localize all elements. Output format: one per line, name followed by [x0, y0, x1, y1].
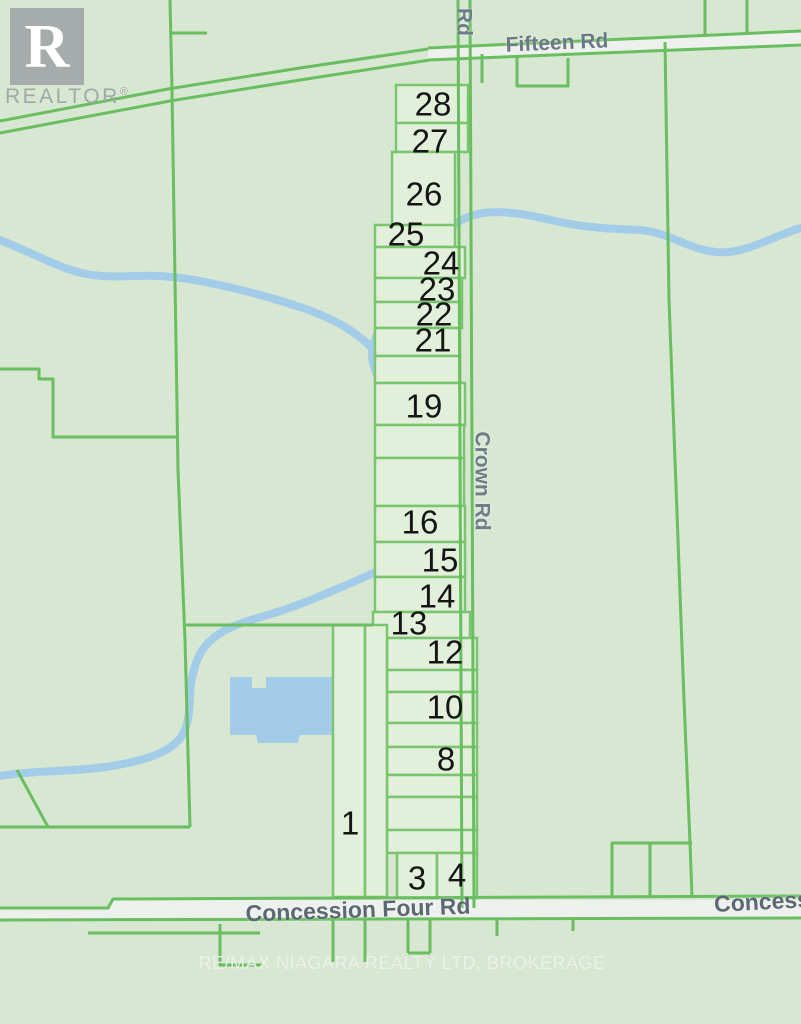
parcel-27-label: 27 — [412, 125, 449, 158]
parcel-3-label: 3 — [408, 862, 426, 895]
realtor-logo: R — [10, 8, 84, 85]
map-screenshot: 28 27 26 25 24 23 22 21 19 16 15 14 13 1… — [0, 0, 801, 1024]
west-step-boundary — [0, 369, 178, 437]
concession-partial-label: Concess — [714, 888, 801, 916]
brokerage-watermark: RE/MAX NIAGARA REALTY LTD, BROKERAGE — [198, 954, 605, 972]
stream-tributary — [0, 240, 374, 350]
parcel-15-label: 15 — [422, 544, 459, 577]
crown-rd-label: Crown Rd — [472, 431, 493, 530]
parcel-8-label: 8 — [437, 743, 455, 776]
fifteen-rd-label: Fifteen Rd — [505, 30, 608, 55]
fifteen-rd-south-branch — [517, 57, 568, 86]
parcel-12-label: 12 — [427, 636, 464, 669]
crown-rd-partial-label: Rd — [454, 8, 475, 36]
west-vertical-road — [170, 0, 190, 827]
realtor-logo-r: R — [25, 16, 70, 78]
parcel-10-label: 10 — [427, 691, 464, 724]
parcel-21-label: 21 — [415, 324, 452, 357]
pond — [230, 677, 336, 743]
realtor-logo-text: REALTOR® — [5, 86, 128, 107]
parcel-4-label: 4 — [448, 859, 466, 892]
parcel-19-label: 19 — [406, 390, 443, 423]
parcel-1-label: 1 — [341, 807, 359, 840]
concession-rd-pavement-west — [0, 909, 113, 919]
map-canvas — [0, 0, 801, 1024]
registered-mark: ® — [120, 86, 128, 98]
southeast-lot — [611, 843, 692, 897]
parcel-16-label: 16 — [402, 506, 439, 539]
parcel-28-label: 28 — [415, 88, 452, 121]
parcel-13-label: 13 — [391, 607, 428, 640]
parcel-26-label: 26 — [406, 178, 443, 211]
parcel-25-label: 25 — [388, 218, 425, 251]
realtor-wordmark: REALTOR — [5, 85, 120, 108]
southwest-boundary — [0, 770, 190, 827]
east-vertical-road — [665, 42, 692, 897]
